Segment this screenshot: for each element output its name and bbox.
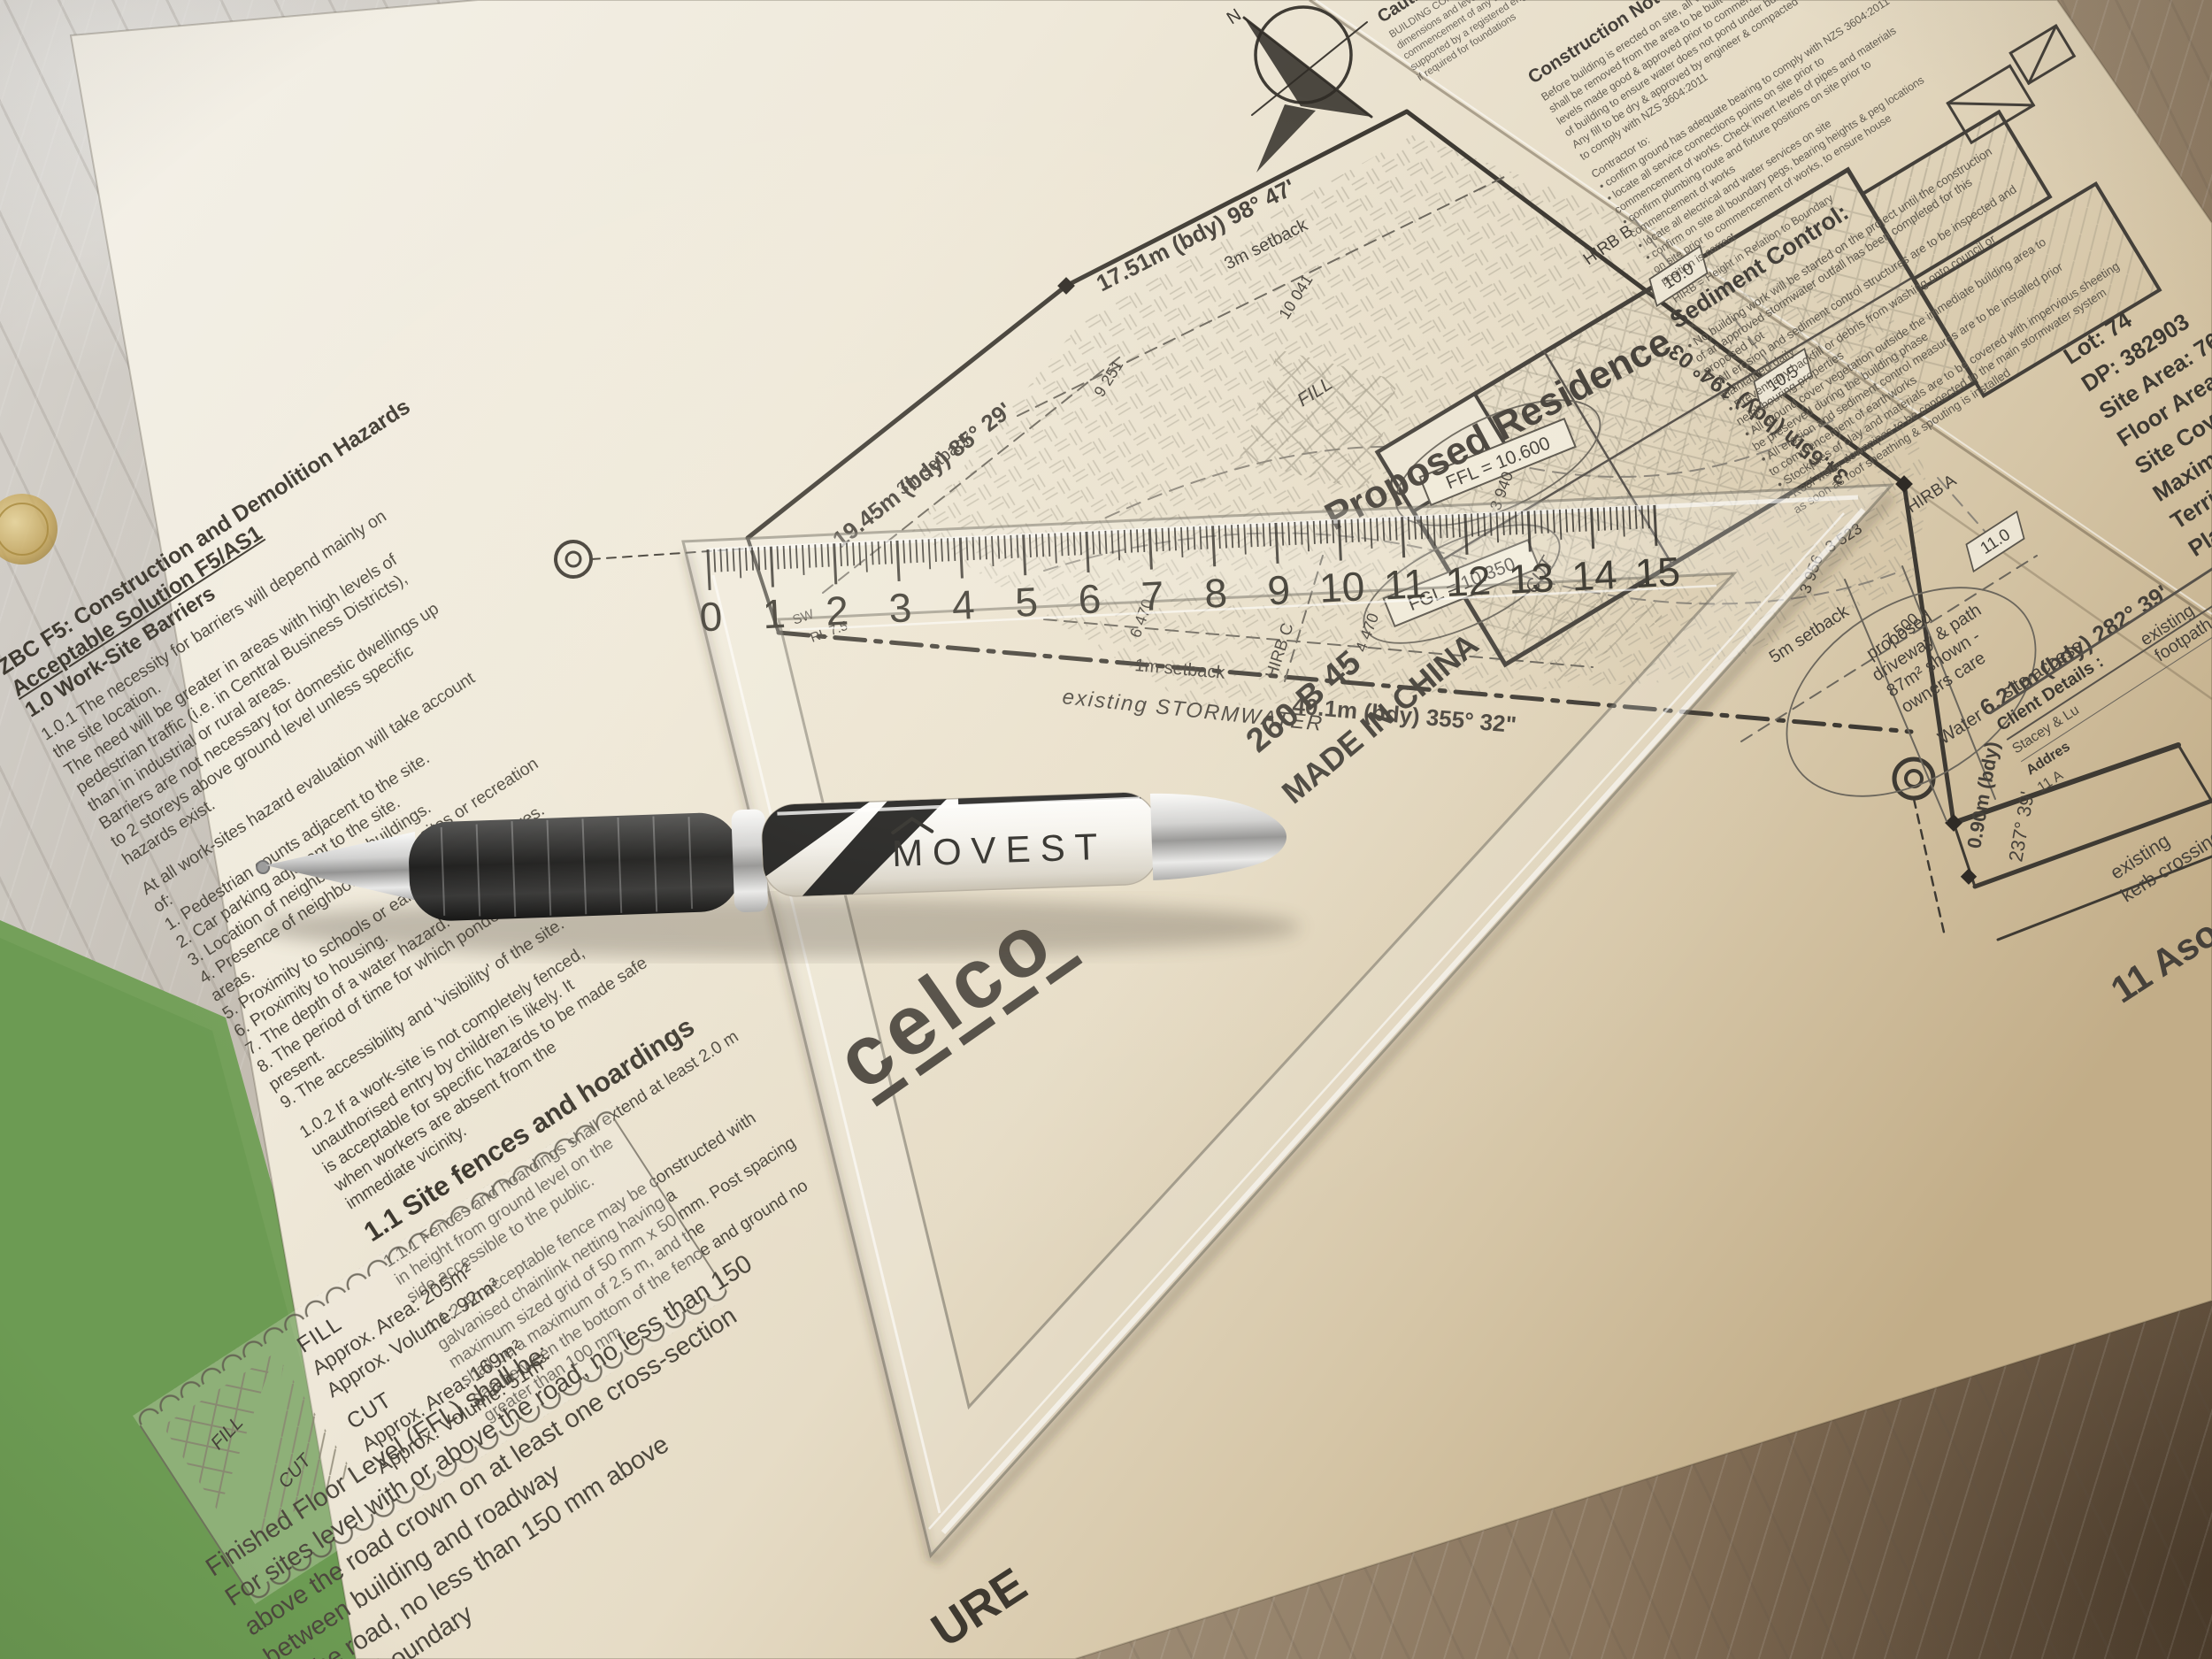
photo-scene: FFL = 10.600 FGL = 10.350 10.0 10.5 11.0 xyxy=(0,0,2212,1659)
embossed-seal xyxy=(0,494,58,565)
